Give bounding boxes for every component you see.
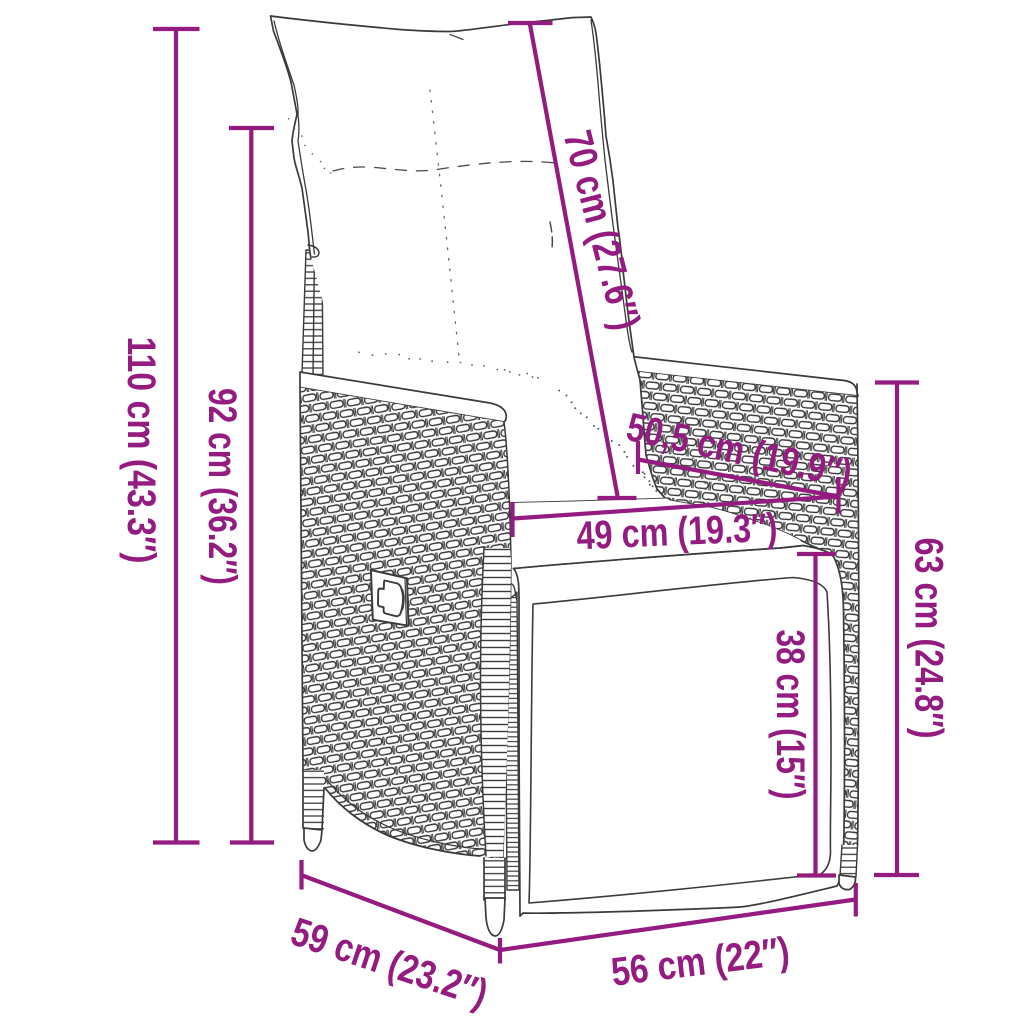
svg-text:49 cm (19.3″): 49 cm (19.3″) [576, 506, 779, 559]
svg-text:63 cm (24.8″): 63 cm (24.8″) [907, 538, 951, 739]
svg-text:92 cm (36.2″): 92 cm (36.2″) [200, 388, 244, 585]
svg-text:38 cm (15″): 38 cm (15″) [768, 630, 812, 800]
svg-text:110 cm (43.3″): 110 cm (43.3″) [119, 337, 163, 564]
